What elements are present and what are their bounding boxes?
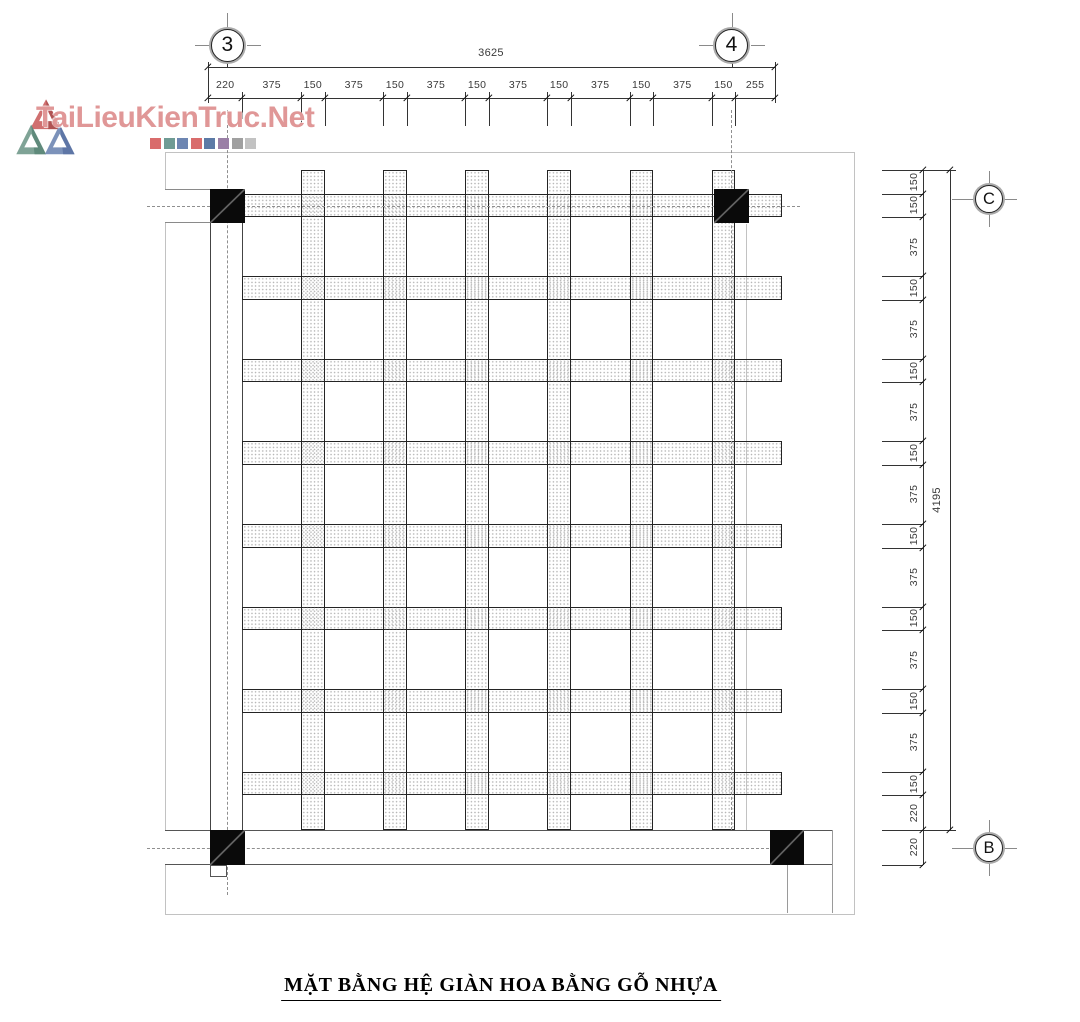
dim-label: 375 [908, 237, 920, 255]
dim-ext-line [882, 217, 923, 218]
vertical-beam [547, 170, 570, 830]
logo-square [150, 138, 161, 149]
dim-ext-line [882, 441, 923, 442]
dim-label: 220 [908, 803, 920, 821]
logo-square [245, 138, 256, 149]
grid-bubble-3: 3 [211, 29, 244, 62]
dim-label: 150 [908, 774, 920, 792]
dim-ext-line [882, 194, 923, 195]
below-column-line [787, 865, 788, 913]
dim-label: 375 [908, 485, 920, 503]
bubble-tick [227, 13, 228, 27]
dim-label: 150 [908, 444, 920, 462]
column-top-left [210, 189, 245, 224]
logo-square [177, 138, 188, 149]
vertical-beam [301, 170, 324, 830]
bubble-tick [732, 13, 733, 27]
dim-label: 255 [746, 79, 764, 91]
bubble-tick [989, 171, 990, 184]
dim-label: 150 [908, 279, 920, 297]
dim-label: 375 [908, 320, 920, 338]
dim-label: 220 [908, 838, 920, 856]
dim-label: 375 [591, 79, 609, 91]
dim-ext-line [882, 865, 923, 866]
dim-ext-line [882, 359, 923, 360]
bubble-tick [247, 45, 261, 46]
dim-line-total-right [950, 170, 951, 830]
dim-label: 375 [509, 79, 527, 91]
bubble-tick [952, 199, 974, 200]
dim-label: 150 [386, 79, 404, 91]
logo-square [191, 138, 202, 149]
dim-label: 375 [345, 79, 363, 91]
dim-ext-line [882, 772, 923, 773]
dim-label: 150 [908, 692, 920, 710]
bubble-tick [989, 214, 990, 227]
dim-ext-line [882, 382, 923, 383]
dim-ext-line [882, 276, 923, 277]
bubble-tick [195, 45, 209, 46]
dim-ext-line [882, 630, 923, 631]
vertical-beam [465, 170, 488, 830]
drawing-title: MẶT BẰNG HỆ GIÀN HOA BẰNG GỖ NHỰA [281, 974, 721, 1001]
dim-label: 375 [263, 79, 281, 91]
bubble-tick [989, 820, 990, 833]
dim-label: 220 [216, 79, 234, 91]
grid-line-c [147, 206, 800, 207]
vertical-beam [383, 170, 406, 830]
dim-ext-line [882, 689, 923, 690]
dim-ext-line [882, 607, 923, 608]
bubble-tick [1004, 848, 1017, 849]
dim-label: 375 [908, 650, 920, 668]
dim-label: 150 [550, 79, 568, 91]
vertical-beam [630, 170, 653, 830]
dim-ext-line [882, 548, 923, 549]
bubble-tick [751, 45, 765, 46]
dim-label: 150 [908, 173, 920, 191]
bubble-tick [699, 45, 713, 46]
grid-bubble-b: B [975, 834, 1003, 862]
logo-text: TaiLieuKienTruc.Net [36, 101, 314, 135]
floor-plan: 3625 4195 3 4 C B 2203751503751503751503… [0, 0, 1080, 1022]
dim-label: 150 [468, 79, 486, 91]
dim-ext-line [882, 300, 923, 301]
logo-square [232, 138, 243, 149]
dim-ext-line [882, 524, 923, 525]
dim-label: 150 [908, 361, 920, 379]
dim-label: 150 [632, 79, 650, 91]
dim-label: 150 [908, 609, 920, 627]
dim-label: 150 [908, 196, 920, 214]
dim-label: 150 [304, 79, 322, 91]
column-bottom-right [770, 830, 805, 865]
dim-line-seg-top [208, 98, 775, 99]
dim-ext-line [882, 795, 923, 796]
grid-line-3 [227, 110, 228, 895]
bubble-tick [1004, 199, 1017, 200]
bubble-tick [989, 863, 990, 876]
inner-frame-line [832, 830, 833, 913]
logo-square [204, 138, 215, 149]
left-edge-beam [210, 189, 244, 865]
dim-total-right: 4195 [931, 487, 943, 513]
dim-slash [919, 861, 926, 868]
dim-label: 375 [673, 79, 691, 91]
dim-label: 375 [908, 568, 920, 586]
dim-label: 150 [908, 527, 920, 545]
dim-end-bar [882, 170, 956, 171]
logo-square [164, 138, 175, 149]
anchor-notch [210, 865, 227, 877]
dim-label: 375 [908, 403, 920, 421]
dim-label: 375 [427, 79, 445, 91]
column-bottom-left [210, 830, 245, 865]
dim-ext-line [882, 713, 923, 714]
dim-line-total-top [208, 67, 775, 68]
bubble-stem [732, 62, 733, 68]
column-top-right [714, 189, 749, 224]
dim-label: 150 [714, 79, 732, 91]
dim-label: 375 [908, 733, 920, 751]
drawing-canvas: TaiLieuKienTruc.Net 3625 4195 3 4 [0, 0, 1080, 1022]
dim-ext-line [882, 465, 923, 466]
bubble-stem [227, 62, 228, 68]
bubble-tick [952, 848, 974, 849]
dim-total-top: 3625 [478, 47, 504, 59]
grid-bubble-c: C [975, 185, 1003, 213]
dim-ext-line [882, 830, 923, 831]
grid-bubble-4: 4 [715, 29, 748, 62]
logo-squares [150, 138, 259, 149]
logo-square [218, 138, 229, 149]
